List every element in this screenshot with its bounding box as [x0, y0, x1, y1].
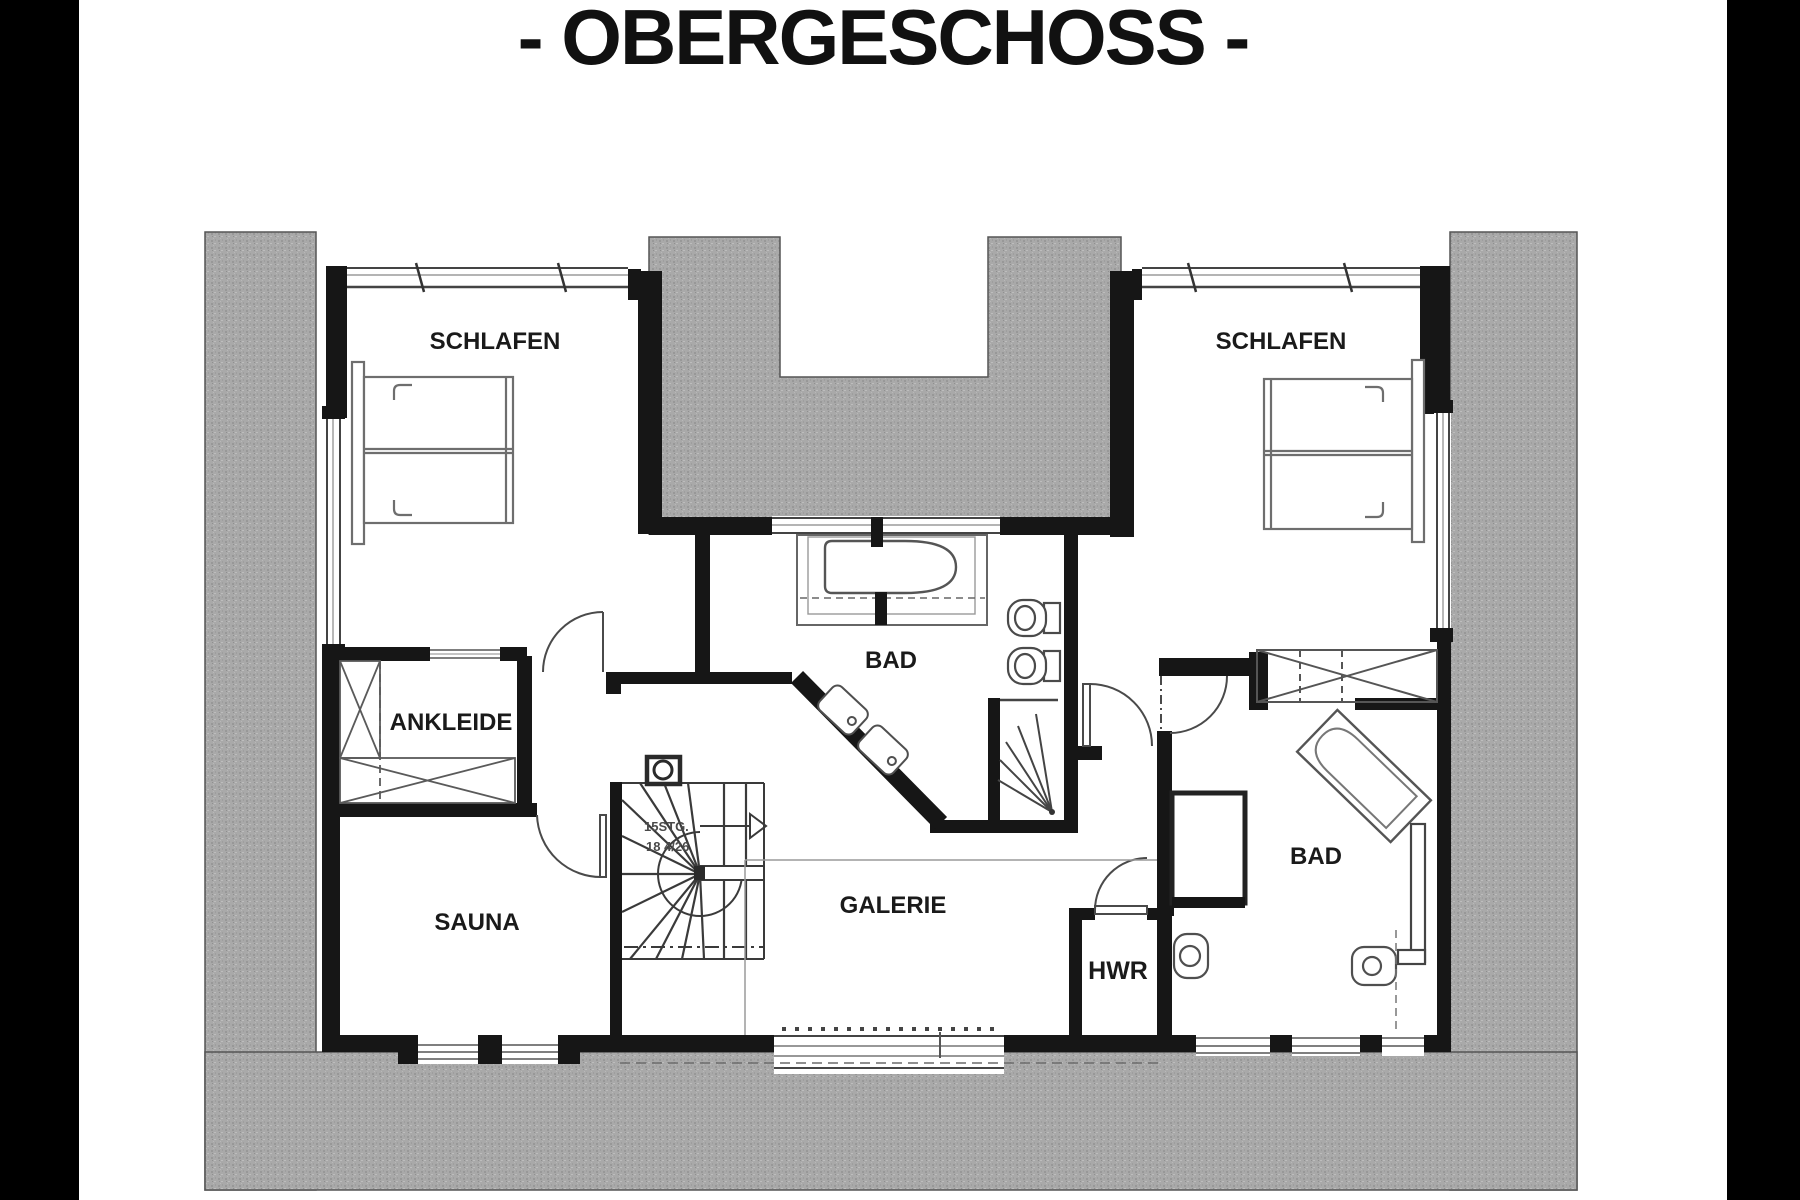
svg-text:18 4/26: 18 4/26	[646, 839, 689, 854]
svg-text:GALERIE: GALERIE	[840, 892, 947, 919]
svg-text:SCHLAFEN: SCHLAFEN	[1216, 328, 1347, 355]
svg-text:ANKLEIDE: ANKLEIDE	[390, 709, 513, 736]
svg-text:SAUNA: SAUNA	[434, 909, 519, 936]
svg-text:HWR: HWR	[1088, 957, 1148, 985]
svg-text:- OBERGESCHOSS -: - OBERGESCHOSS -	[518, 0, 1249, 81]
svg-text:BAD: BAD	[1290, 843, 1342, 870]
svg-text:BAD: BAD	[865, 647, 917, 674]
svg-text:SCHLAFEN: SCHLAFEN	[430, 328, 561, 355]
svg-text:15STG.: 15STG.	[644, 819, 689, 834]
